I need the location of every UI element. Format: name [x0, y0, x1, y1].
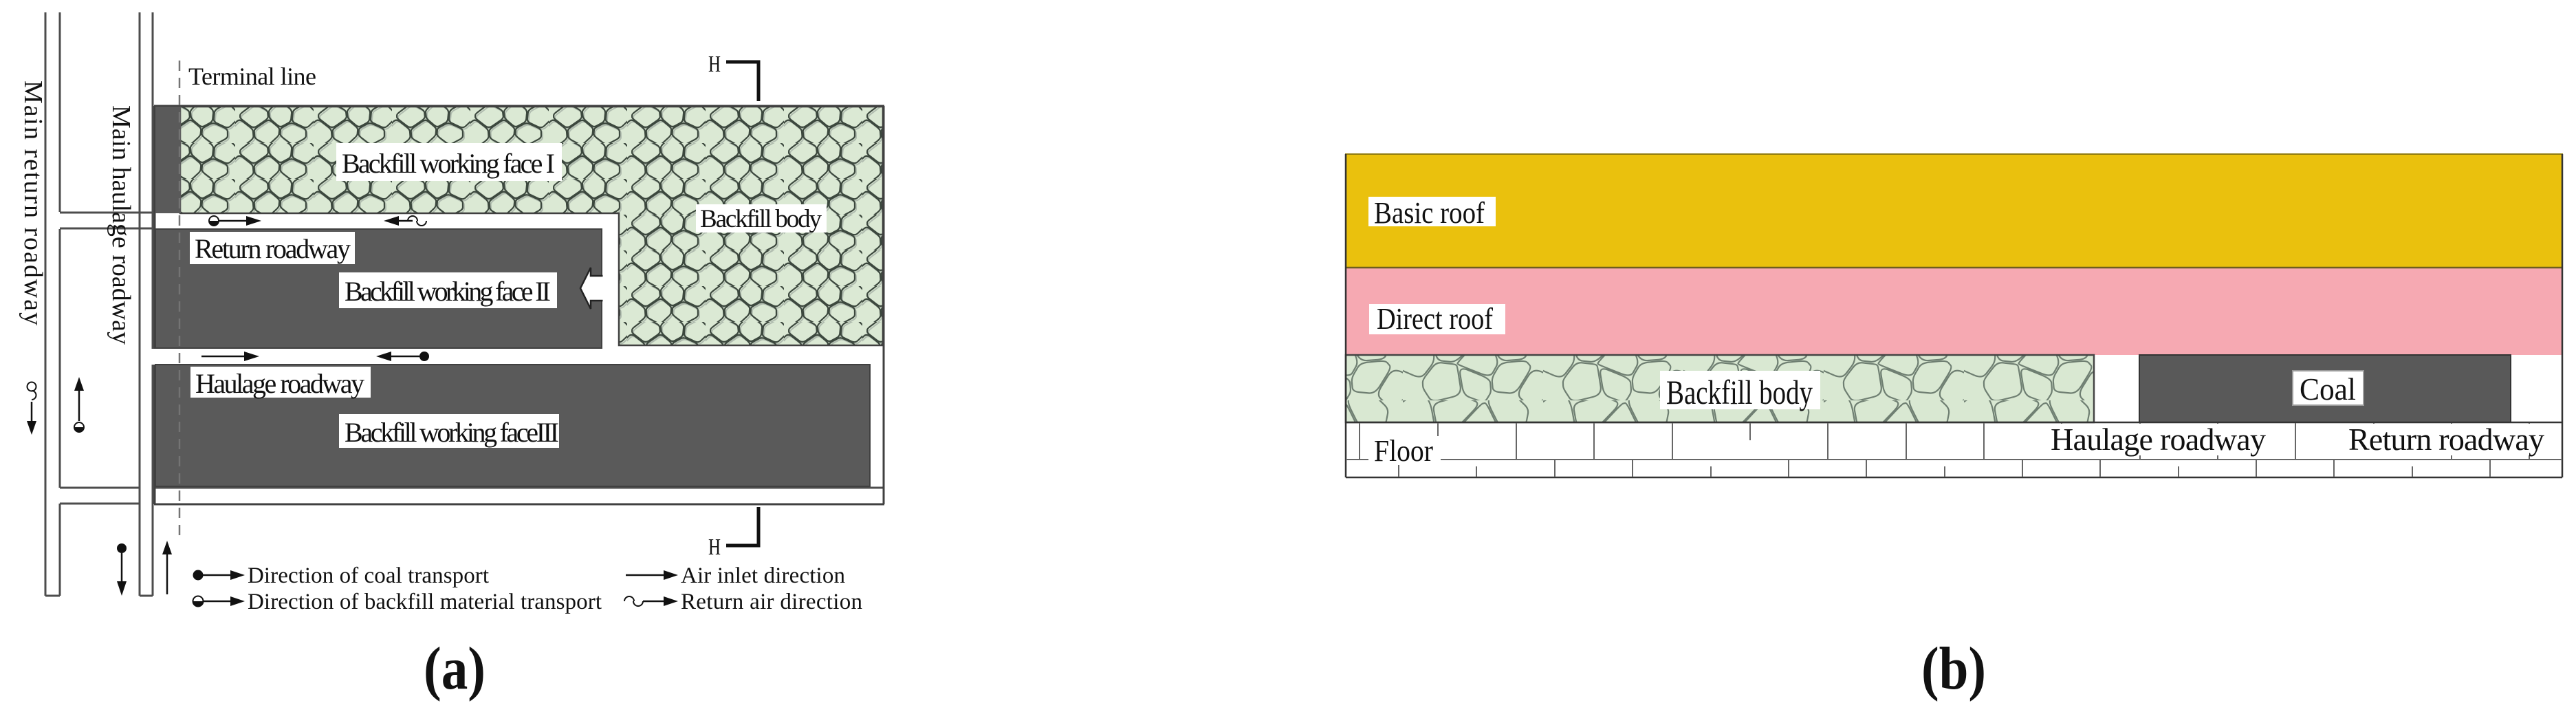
svg-text:Backfill body: Backfill body	[1666, 373, 1813, 411]
svg-text:H: H	[708, 52, 721, 77]
svg-text:H: H	[708, 535, 721, 560]
svg-text:Direction of coal transport: Direction of coal transport	[248, 563, 489, 588]
svg-text:Main return roadway: Main return roadway	[19, 80, 47, 325]
svg-text:Direct roof: Direct roof	[1377, 302, 1493, 336]
svg-text:Floor: Floor	[1374, 434, 1433, 468]
svg-text:Return air direction: Return air direction	[681, 590, 862, 614]
svg-text:Air inlet direction: Air inlet direction	[681, 563, 845, 588]
svg-text:Basic roof: Basic roof	[1374, 196, 1485, 230]
svg-text:(a): (a)	[424, 636, 485, 702]
svg-text:Direction of backfill material: Direction of backfill material transport	[248, 590, 602, 614]
svg-text:Backfill working face II: Backfill working face II	[345, 276, 551, 307]
svg-text:Terminal line: Terminal line	[188, 63, 316, 90]
svg-text:Haulage roadway: Haulage roadway	[2051, 422, 2266, 457]
svg-text:Main haulage roadway: Main haulage roadway	[107, 105, 135, 345]
svg-text:Return roadway: Return roadway	[195, 233, 351, 264]
svg-text:Backfill working face I: Backfill working face I	[342, 148, 555, 179]
svg-text:(b): (b)	[1921, 636, 1986, 702]
svg-text:Return roadway: Return roadway	[2348, 422, 2544, 457]
svg-text:Haulage roadway: Haulage roadway	[195, 368, 364, 399]
svg-text:Backfill working faceIII: Backfill working faceIII	[345, 417, 559, 448]
svg-text:Backfill body: Backfill body	[700, 205, 822, 233]
svg-text:Coal: Coal	[2300, 371, 2356, 407]
